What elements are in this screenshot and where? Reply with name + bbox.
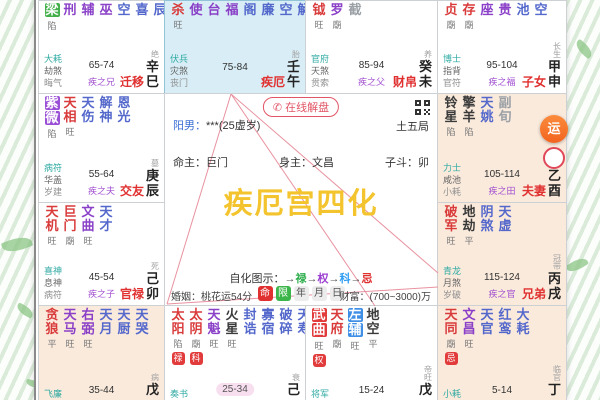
brightness-label: 平 bbox=[464, 236, 473, 246]
star-char: 巨 bbox=[63, 205, 76, 219]
star-char: 哭 bbox=[135, 322, 148, 336]
earthly-branch: 午 bbox=[287, 74, 300, 89]
star-char: 虚 bbox=[498, 219, 511, 233]
star-list: 天同廟忌文昌旺天官红鸾大耗 bbox=[444, 308, 530, 365]
god-label: 博士 bbox=[443, 53, 461, 65]
masters-line: 命主：巨门 身主：文昌 子斗：卯 bbox=[173, 154, 429, 170]
star-char: 门 bbox=[63, 219, 76, 233]
brightness-label: 廟 bbox=[446, 339, 455, 349]
palace-name-line: 疾厄午 bbox=[261, 74, 300, 90]
star: 辅 bbox=[81, 3, 95, 31]
age-range: 25-34 bbox=[216, 383, 254, 396]
mode-button-限[interactable]: 限 bbox=[276, 286, 291, 301]
star-char: 辅 bbox=[81, 3, 94, 17]
leaf-decoration bbox=[15, 302, 35, 318]
star-char: 天 bbox=[99, 205, 112, 219]
star-char: 钺 bbox=[312, 3, 325, 17]
heavenly-stem: 己 bbox=[287, 382, 300, 397]
star-char: 阴 bbox=[480, 205, 493, 219]
god-label: 月煞 bbox=[443, 277, 461, 289]
brightness-label: 廟 bbox=[332, 339, 341, 349]
stage-char: 养 bbox=[393, 51, 432, 59]
star: 寡宿 bbox=[261, 308, 275, 365]
god-label: 奏书 bbox=[170, 388, 188, 400]
star-char: 恩 bbox=[117, 96, 130, 110]
gender-label: 阳男： bbox=[173, 120, 206, 132]
star-char: 地 bbox=[462, 205, 475, 219]
star-char: 狼 bbox=[45, 322, 58, 336]
longevity-stage: 养 bbox=[393, 51, 432, 59]
stage-char: 衰 bbox=[287, 374, 300, 382]
brightness-label: 旺 bbox=[350, 341, 359, 351]
star: 破军旺 bbox=[444, 205, 458, 246]
star: 地劫平 bbox=[462, 205, 476, 246]
sihua-badge: 禄 bbox=[172, 352, 185, 365]
star-char: 巫 bbox=[99, 3, 112, 17]
star: 钺旺 bbox=[312, 3, 326, 30]
heavenly-stem: 戊 bbox=[419, 382, 432, 397]
brightness-label: 陷 bbox=[173, 339, 182, 349]
palace-jiaoyou[interactable]: 紫微陷天相旺天伤解神恩光病符华盖岁建55-64疾之夫墓庚交友辰 bbox=[38, 93, 165, 203]
star-char: 天 bbox=[480, 96, 493, 110]
palace-name-line: 财帛未 bbox=[393, 74, 432, 90]
star-char: 解 bbox=[99, 96, 112, 110]
star: 天同廟忌 bbox=[444, 308, 458, 365]
age-range: 15-24 bbox=[359, 385, 385, 396]
stem-branch-block: 胎壬疾厄午 bbox=[261, 51, 300, 90]
stage-char: 病 bbox=[146, 374, 159, 382]
palace-guanlu[interactable]: 天机旺巨门廟文曲旺天才喜神息神病符45-54疾之子死己官禄卯 bbox=[38, 202, 165, 306]
age-range: 65-74 bbox=[88, 60, 115, 71]
longevity-stage: 衰 bbox=[287, 374, 300, 382]
star-char: 厨 bbox=[117, 322, 130, 336]
brightness-label: 旺 bbox=[83, 339, 92, 349]
brightness-label: 旺 bbox=[83, 236, 92, 246]
star: 巫 bbox=[99, 3, 113, 31]
longevity-stage: 病 bbox=[146, 374, 159, 382]
mode-button-命[interactable]: 命 bbox=[258, 286, 273, 301]
star: 天相旺 bbox=[63, 96, 77, 139]
star: 贵 bbox=[498, 3, 512, 30]
god-label: 岁建 bbox=[44, 186, 62, 198]
star: 天伤 bbox=[81, 96, 95, 139]
palace-name-line: 官禄卯 bbox=[120, 286, 159, 302]
god-labels: 博士指背官符 bbox=[443, 53, 461, 89]
age-range: 55-64 bbox=[88, 169, 115, 180]
brightness-label: 旺 bbox=[464, 339, 473, 349]
star-char: 魁 bbox=[207, 322, 220, 336]
age-block: 5-14 bbox=[492, 385, 512, 400]
star: 空 bbox=[279, 3, 293, 30]
star: 天机旺 bbox=[45, 205, 59, 246]
god-label: 指背 bbox=[443, 65, 461, 77]
age-range: 95-104 bbox=[486, 60, 517, 71]
god-labels: 病符华盖岁建 bbox=[44, 162, 62, 198]
palace-fumu[interactable]: 武曲旺权天府廟左辅旺地空平将军将星15-24帝旺戊 bbox=[305, 305, 438, 400]
star-list: 太阳陷禄太阴廟科天魁旺火星旺封诰寡宿破碎天寿 bbox=[171, 308, 306, 365]
star-char: 空 bbox=[117, 3, 130, 17]
star: 座 bbox=[480, 3, 494, 30]
center-info-area: ✆ 在线解盘 土五局 阳男：***(25虚岁) 命主：巨门 身主：文昌 子斗：卯… bbox=[164, 93, 438, 306]
relation-label bbox=[222, 77, 248, 88]
age-block: 65-74疾之兄 bbox=[88, 60, 115, 88]
star-char: 贪 bbox=[45, 308, 58, 322]
star-char: 星 bbox=[225, 322, 238, 336]
star: 火星旺 bbox=[225, 308, 239, 365]
star-list: 天机旺巨门廟文曲旺天才 bbox=[45, 205, 113, 246]
star-char: 碎 bbox=[279, 322, 292, 336]
god-label: 病符 bbox=[44, 289, 62, 301]
star-char: 天 bbox=[330, 308, 343, 322]
star-char: 羊 bbox=[462, 110, 475, 124]
star: 贞廟 bbox=[444, 3, 458, 30]
brightness-label: 旺 bbox=[173, 20, 182, 30]
age-block: 115-124疾之官 bbox=[484, 272, 520, 300]
star: 擎羊陷 bbox=[462, 96, 476, 137]
earthly-branch: 卯 bbox=[146, 286, 159, 301]
heavenly-stem: 癸 bbox=[393, 59, 432, 74]
star-char: 伤 bbox=[81, 110, 94, 124]
sihua-legend-item: 科 bbox=[340, 273, 351, 285]
stage-char: 绝 bbox=[120, 51, 159, 59]
god-label: 力士 bbox=[443, 162, 461, 174]
star: 天府廟 bbox=[330, 308, 344, 367]
shen-zhu: 身主：文昌 bbox=[279, 154, 334, 170]
god-label: 青龙 bbox=[443, 265, 461, 277]
star: 天哭 bbox=[135, 308, 149, 349]
earthly-branch: 戌 bbox=[548, 286, 561, 301]
star: 封诰 bbox=[243, 308, 257, 365]
brightness-label: 旺 bbox=[209, 339, 218, 349]
star: 右弼旺 bbox=[81, 308, 95, 349]
star-char: 空 bbox=[534, 3, 547, 17]
age-range: 85-94 bbox=[358, 60, 385, 71]
star-char: 弼 bbox=[81, 322, 94, 336]
star-char: 罗 bbox=[330, 3, 343, 17]
god-label: 病符 bbox=[44, 162, 62, 174]
star: 喜 bbox=[135, 3, 149, 31]
longevity-stage: 绝 bbox=[120, 51, 159, 59]
god-labels: 青龙月煞岁破 bbox=[443, 265, 461, 301]
star-list: 武曲旺权天府廟左辅旺地空平 bbox=[312, 308, 380, 367]
star: 左辅旺 bbox=[348, 308, 362, 367]
relation-label: 疾之田 bbox=[484, 184, 520, 197]
star-char: 天 bbox=[63, 308, 76, 322]
earthly-branch: 未 bbox=[419, 74, 432, 89]
stage-char: 生 bbox=[522, 51, 561, 59]
arrow-glyph: → bbox=[351, 273, 362, 285]
god-label: 小耗 bbox=[443, 388, 461, 400]
star: 天官 bbox=[480, 308, 494, 365]
stage-char: 墓 bbox=[120, 160, 159, 168]
star-char: 同 bbox=[444, 322, 457, 336]
age-range: 5-14 bbox=[492, 385, 512, 396]
star-char: 天 bbox=[99, 308, 112, 322]
brightness-label: 旺 bbox=[227, 339, 236, 349]
star-char: 破 bbox=[279, 308, 292, 322]
secondary-float-button[interactable] bbox=[543, 147, 565, 169]
god-label: 灾煞 bbox=[170, 65, 188, 77]
age-range: 115-124 bbox=[484, 272, 520, 283]
star: 文昌旺 bbox=[462, 308, 476, 365]
palace-name: 夫妻 bbox=[522, 184, 546, 198]
star: 空 bbox=[534, 3, 548, 30]
age-block: 55-64疾之夫 bbox=[88, 169, 115, 197]
age-range: 105-114 bbox=[484, 169, 520, 180]
star: 福 bbox=[225, 3, 239, 30]
star-char: 昌 bbox=[462, 322, 475, 336]
mode-button-年[interactable]: 年 bbox=[294, 286, 309, 301]
palace-name: 兄弟 bbox=[522, 287, 546, 301]
relation-label: 疾之夫 bbox=[88, 184, 115, 197]
star: 天姚 bbox=[480, 96, 494, 137]
star: 天魁旺 bbox=[207, 308, 221, 365]
god-label: 伏兵 bbox=[170, 53, 188, 65]
star-char: 梁 bbox=[45, 3, 60, 17]
relation-label: 疾之福 bbox=[486, 75, 517, 88]
star: 空 bbox=[117, 3, 131, 31]
online-consult-label: 在线解盘 bbox=[285, 99, 329, 115]
heavenly-stem: 戊 bbox=[146, 382, 159, 397]
star: 副旬 bbox=[498, 96, 512, 137]
star-char: 擎 bbox=[462, 96, 475, 110]
palace-fude[interactable]: 太阳陷禄太阴廟科天魁旺火星旺封诰寡宿破碎天寿奏书攀鞍25-34衰己 bbox=[164, 305, 306, 400]
star-char: 官 bbox=[480, 322, 493, 336]
leaf-decoration bbox=[1, 233, 34, 255]
age-block: 25-34 bbox=[216, 383, 254, 400]
sihua-badge: 忌 bbox=[445, 352, 458, 365]
god-labels: 大耗劫煞晦气 bbox=[44, 53, 62, 89]
star-char: 宿 bbox=[261, 322, 274, 336]
star-char: 光 bbox=[117, 110, 130, 124]
zi-dou: 子斗：卯 bbox=[385, 154, 429, 170]
palace-name: 子女 bbox=[522, 75, 546, 89]
star-list: 铃星陷擎羊陷天姚副旬 bbox=[444, 96, 512, 137]
star-char: 空 bbox=[366, 322, 379, 336]
heavenly-stem: 甲 bbox=[522, 59, 561, 74]
star-list: 破军旺地劫平阴煞天虚 bbox=[444, 205, 512, 246]
star-char: 阴 bbox=[189, 322, 202, 336]
star-char: 煞 bbox=[480, 219, 493, 233]
god-label: 晦气 bbox=[44, 77, 62, 89]
palace-zinv[interactable]: 贞廟存廟座贵池空博士指背官符95-104疾之福长生甲子女申 bbox=[437, 0, 567, 94]
stage-char: 带 bbox=[522, 263, 561, 271]
heavenly-stem: 壬 bbox=[261, 59, 300, 74]
watermark-title: 疾厄宫四化 bbox=[165, 180, 437, 222]
god-label: 咸池 bbox=[443, 174, 461, 186]
god-label: 华盖 bbox=[44, 174, 62, 186]
star: 阁 bbox=[243, 3, 257, 30]
marriage-score: 婚姻：桃花运54分 bbox=[171, 288, 252, 303]
star-char: 诰 bbox=[243, 322, 256, 336]
star: 天马旺 bbox=[63, 308, 77, 349]
god-label: 息神 bbox=[44, 277, 62, 289]
stem-branch-block: 病戊 bbox=[146, 374, 159, 400]
palace-name: 迁移 bbox=[120, 75, 144, 89]
palace-caibo[interactable]: 钺旺罗廟截官府天煞贯索85-94疾之父养癸财帛未 bbox=[305, 0, 438, 94]
palace-name: 财帛 bbox=[393, 75, 417, 89]
god-label: 喜神 bbox=[44, 265, 62, 277]
star: 大耗 bbox=[516, 308, 530, 365]
god-labels: 小耗亡神 bbox=[443, 388, 461, 400]
brightness-label: 陷 bbox=[47, 21, 56, 31]
sihua-legend-item: 禄 bbox=[296, 273, 307, 285]
brightness-label: 陷 bbox=[464, 127, 473, 137]
star: 巨门廟 bbox=[63, 205, 77, 246]
star-char: 太 bbox=[189, 308, 202, 322]
stem-branch-block: 衰己 bbox=[287, 374, 300, 400]
palace-jie-selected[interactable]: 杀旺使台福阁廉空解伏兵灾煞丧门75-84胎壬疾厄午 bbox=[164, 0, 306, 94]
star-char: 姚 bbox=[480, 110, 493, 124]
ming-zhu: 命主：巨门 bbox=[173, 154, 228, 170]
star-char: 天 bbox=[480, 308, 493, 322]
brightness-label: 廟 bbox=[446, 20, 455, 30]
longevity-stage: 胎 bbox=[261, 51, 300, 59]
mode-button-月[interactable]: 月 bbox=[312, 286, 327, 301]
relation-label: 疾之父 bbox=[358, 75, 385, 88]
palace-minggong[interactable]: 天同廟忌文昌旺天官红鸾大耗小耗亡神5-14临官丁 bbox=[437, 305, 567, 400]
star-char: 副 bbox=[498, 96, 511, 110]
star-char: 使 bbox=[189, 3, 202, 17]
star-char: 星 bbox=[444, 110, 457, 124]
sihua-badge: 科 bbox=[190, 352, 203, 365]
star-char: 耗 bbox=[516, 322, 529, 336]
stage-char: 官 bbox=[548, 374, 561, 382]
phone-icon: ✆ bbox=[273, 101, 282, 114]
earthly-branch: 巳 bbox=[146, 74, 159, 89]
age-value: ***(25虚岁) bbox=[206, 120, 260, 132]
sihua-legend-label: 自化图示： bbox=[230, 273, 285, 285]
star-char: 天 bbox=[117, 308, 130, 322]
stage-char: 旺 bbox=[419, 374, 432, 382]
star-char: 旬 bbox=[498, 110, 511, 124]
stem-branch-block: 长生甲子女申 bbox=[522, 43, 561, 90]
star: 太阴廟科 bbox=[189, 308, 203, 365]
brightness-label: 陷 bbox=[446, 127, 455, 137]
star: 阴煞 bbox=[480, 205, 494, 246]
earthly-branch: 酉 bbox=[548, 183, 561, 198]
longevity-stage: 帝旺 bbox=[419, 366, 432, 382]
earthly-branch: 申 bbox=[548, 74, 561, 89]
star-list: 梁陷刑辅巫空喜辰 bbox=[45, 3, 165, 31]
star-char: 铃 bbox=[444, 96, 457, 110]
leaf-decoration bbox=[565, 255, 589, 275]
age-block: 105-114疾之田 bbox=[484, 169, 520, 197]
relation-label: 疾之子 bbox=[88, 287, 115, 300]
star-char: 军 bbox=[444, 219, 457, 233]
heavenly-stem: 辛 bbox=[120, 59, 159, 74]
wealth-range: 财富：(700~3000)万 bbox=[340, 288, 431, 303]
star-char: 曲 bbox=[81, 219, 94, 233]
star-char: 空 bbox=[279, 3, 292, 17]
sihua-legend-item: 权 bbox=[318, 273, 329, 285]
brightness-label: 旺 bbox=[446, 236, 455, 246]
star: 解神 bbox=[99, 96, 113, 139]
star-char: 座 bbox=[480, 3, 493, 17]
god-label: 将军 bbox=[311, 388, 329, 400]
star: 廉 bbox=[261, 3, 275, 30]
star: 刑 bbox=[63, 3, 77, 31]
online-consult-button[interactable]: ✆ 在线解盘 bbox=[263, 97, 339, 117]
palace-tianzhai[interactable]: 贪狼平天马旺右弼旺天月天厨天哭飞廉岁驿35-44病戊 bbox=[38, 305, 165, 400]
arrow-glyph: → bbox=[329, 273, 340, 285]
star-list: 钺旺罗廟截 bbox=[312, 3, 362, 30]
palace-name-line: 交友辰 bbox=[120, 183, 159, 199]
star-char: 紫 bbox=[45, 96, 60, 110]
relation-label: 疾之兄 bbox=[88, 75, 115, 88]
palace-name-line: 子女申 bbox=[522, 74, 561, 90]
star: 存廟 bbox=[462, 3, 476, 30]
chart-panel: 梁陷刑辅巫空喜辰大耗劫煞晦气65-74疾之兄绝辛迁移巳 杀旺使台福阁廉空解伏兵灾… bbox=[34, 0, 567, 400]
star-char: 台 bbox=[207, 3, 220, 17]
star: 池 bbox=[516, 3, 530, 30]
age-range: 45-54 bbox=[88, 272, 115, 283]
star-char: 文 bbox=[462, 308, 475, 322]
god-label: 官符 bbox=[443, 77, 461, 89]
age-block: 35-44 bbox=[89, 385, 115, 400]
star-char: 天 bbox=[45, 205, 58, 219]
star-char: 红 bbox=[498, 308, 511, 322]
star-char: 廉 bbox=[261, 3, 274, 17]
age-block: 95-104疾之福 bbox=[486, 60, 517, 88]
star-char: 天 bbox=[135, 308, 148, 322]
star: 梁陷 bbox=[45, 3, 59, 31]
star-char: 机 bbox=[45, 219, 58, 233]
star: 地空平 bbox=[366, 308, 380, 367]
heavenly-stem: 己 bbox=[120, 271, 159, 286]
palace-qianyi[interactable]: 梁陷刑辅巫空喜辰大耗劫煞晦气65-74疾之兄绝辛迁移巳 bbox=[38, 0, 165, 94]
heavenly-stem: 乙 bbox=[522, 168, 561, 183]
star-char: 天 bbox=[63, 96, 76, 110]
brightness-label: 廟 bbox=[464, 20, 473, 30]
palace-xiongdi[interactable]: 破军旺地劫平阴煞天虚青龙月煞岁破115-124疾之官冠带丙兄弟戌 bbox=[437, 202, 567, 306]
age-block: 75-84 bbox=[222, 62, 248, 88]
age-block: 85-94疾之父 bbox=[358, 60, 385, 88]
god-label: 小耗 bbox=[443, 186, 461, 198]
star-char: 地 bbox=[366, 308, 379, 322]
fortune-float-button[interactable]: 运 bbox=[540, 115, 568, 143]
star: 罗廟 bbox=[330, 3, 344, 30]
star-char: 微 bbox=[45, 111, 60, 125]
god-label: 丧门 bbox=[170, 77, 188, 89]
star-char: 天 bbox=[207, 308, 220, 322]
longevity-stage: 墓 bbox=[120, 160, 159, 168]
brightness-label: 平 bbox=[47, 339, 56, 349]
god-label: 贯索 bbox=[311, 77, 329, 89]
age-block: 15-24 bbox=[359, 385, 385, 400]
star-char: 火 bbox=[225, 308, 238, 322]
star: 杀旺 bbox=[171, 3, 185, 30]
star-char: 破 bbox=[444, 205, 457, 219]
age-range: 35-44 bbox=[89, 385, 115, 396]
age-block: 45-54疾之子 bbox=[88, 272, 115, 300]
star-char: 才 bbox=[99, 219, 112, 233]
qr-code-icon[interactable] bbox=[415, 100, 430, 115]
star-char: 福 bbox=[225, 3, 238, 17]
longevity-stage: 冠带 bbox=[522, 255, 561, 271]
god-labels: 官府天煞贯索 bbox=[311, 53, 329, 89]
star-list: 贞廟存廟座贵池空 bbox=[444, 3, 548, 30]
star-char: 天 bbox=[81, 96, 94, 110]
star-char: 喜 bbox=[135, 3, 148, 17]
arrow-glyph: → bbox=[285, 273, 296, 285]
star-char: 府 bbox=[330, 322, 343, 336]
god-labels: 力士咸池小耗 bbox=[443, 162, 461, 198]
star-char: 大 bbox=[516, 308, 529, 322]
star-char: 寡 bbox=[261, 308, 274, 322]
god-label: 飞廉 bbox=[44, 388, 62, 400]
star-char: 天 bbox=[498, 205, 511, 219]
